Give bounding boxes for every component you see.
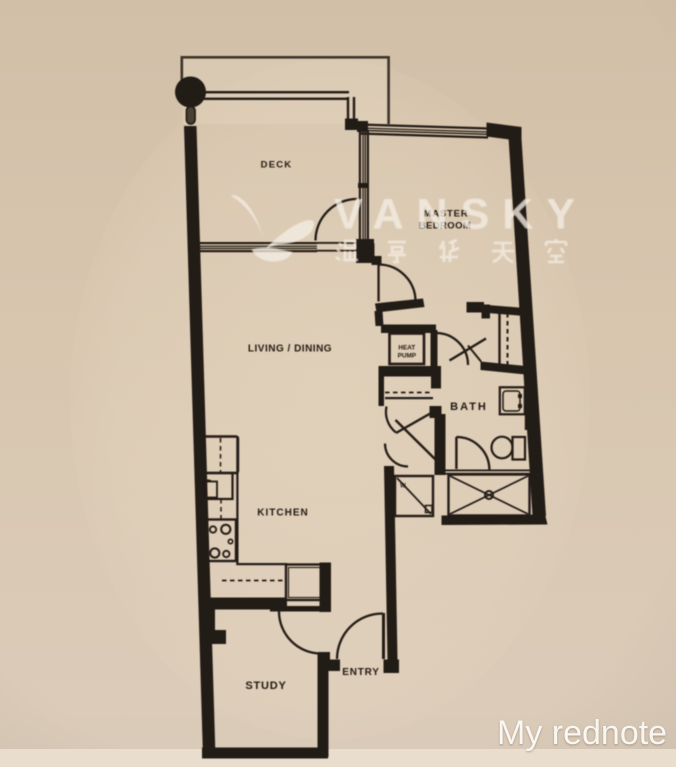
- svg-text:VANSKY: VANSKY: [334, 191, 588, 239]
- svg-text:HEAT: HEAT: [398, 345, 415, 352]
- svg-text:LIVING / DINING: LIVING / DINING: [248, 344, 332, 355]
- svg-text:W: W: [400, 484, 406, 490]
- svg-text:ENTRY: ENTRY: [342, 667, 380, 678]
- svg-text:My rednote: My rednote: [497, 714, 667, 752]
- svg-text:KITCHEN: KITCHEN: [257, 508, 308, 519]
- svg-text:STUDY: STUDY: [245, 680, 286, 692]
- svg-text:BATH: BATH: [450, 401, 488, 413]
- svg-text:DECK: DECK: [261, 160, 293, 171]
- svg-text:PUMP: PUMP: [398, 353, 417, 360]
